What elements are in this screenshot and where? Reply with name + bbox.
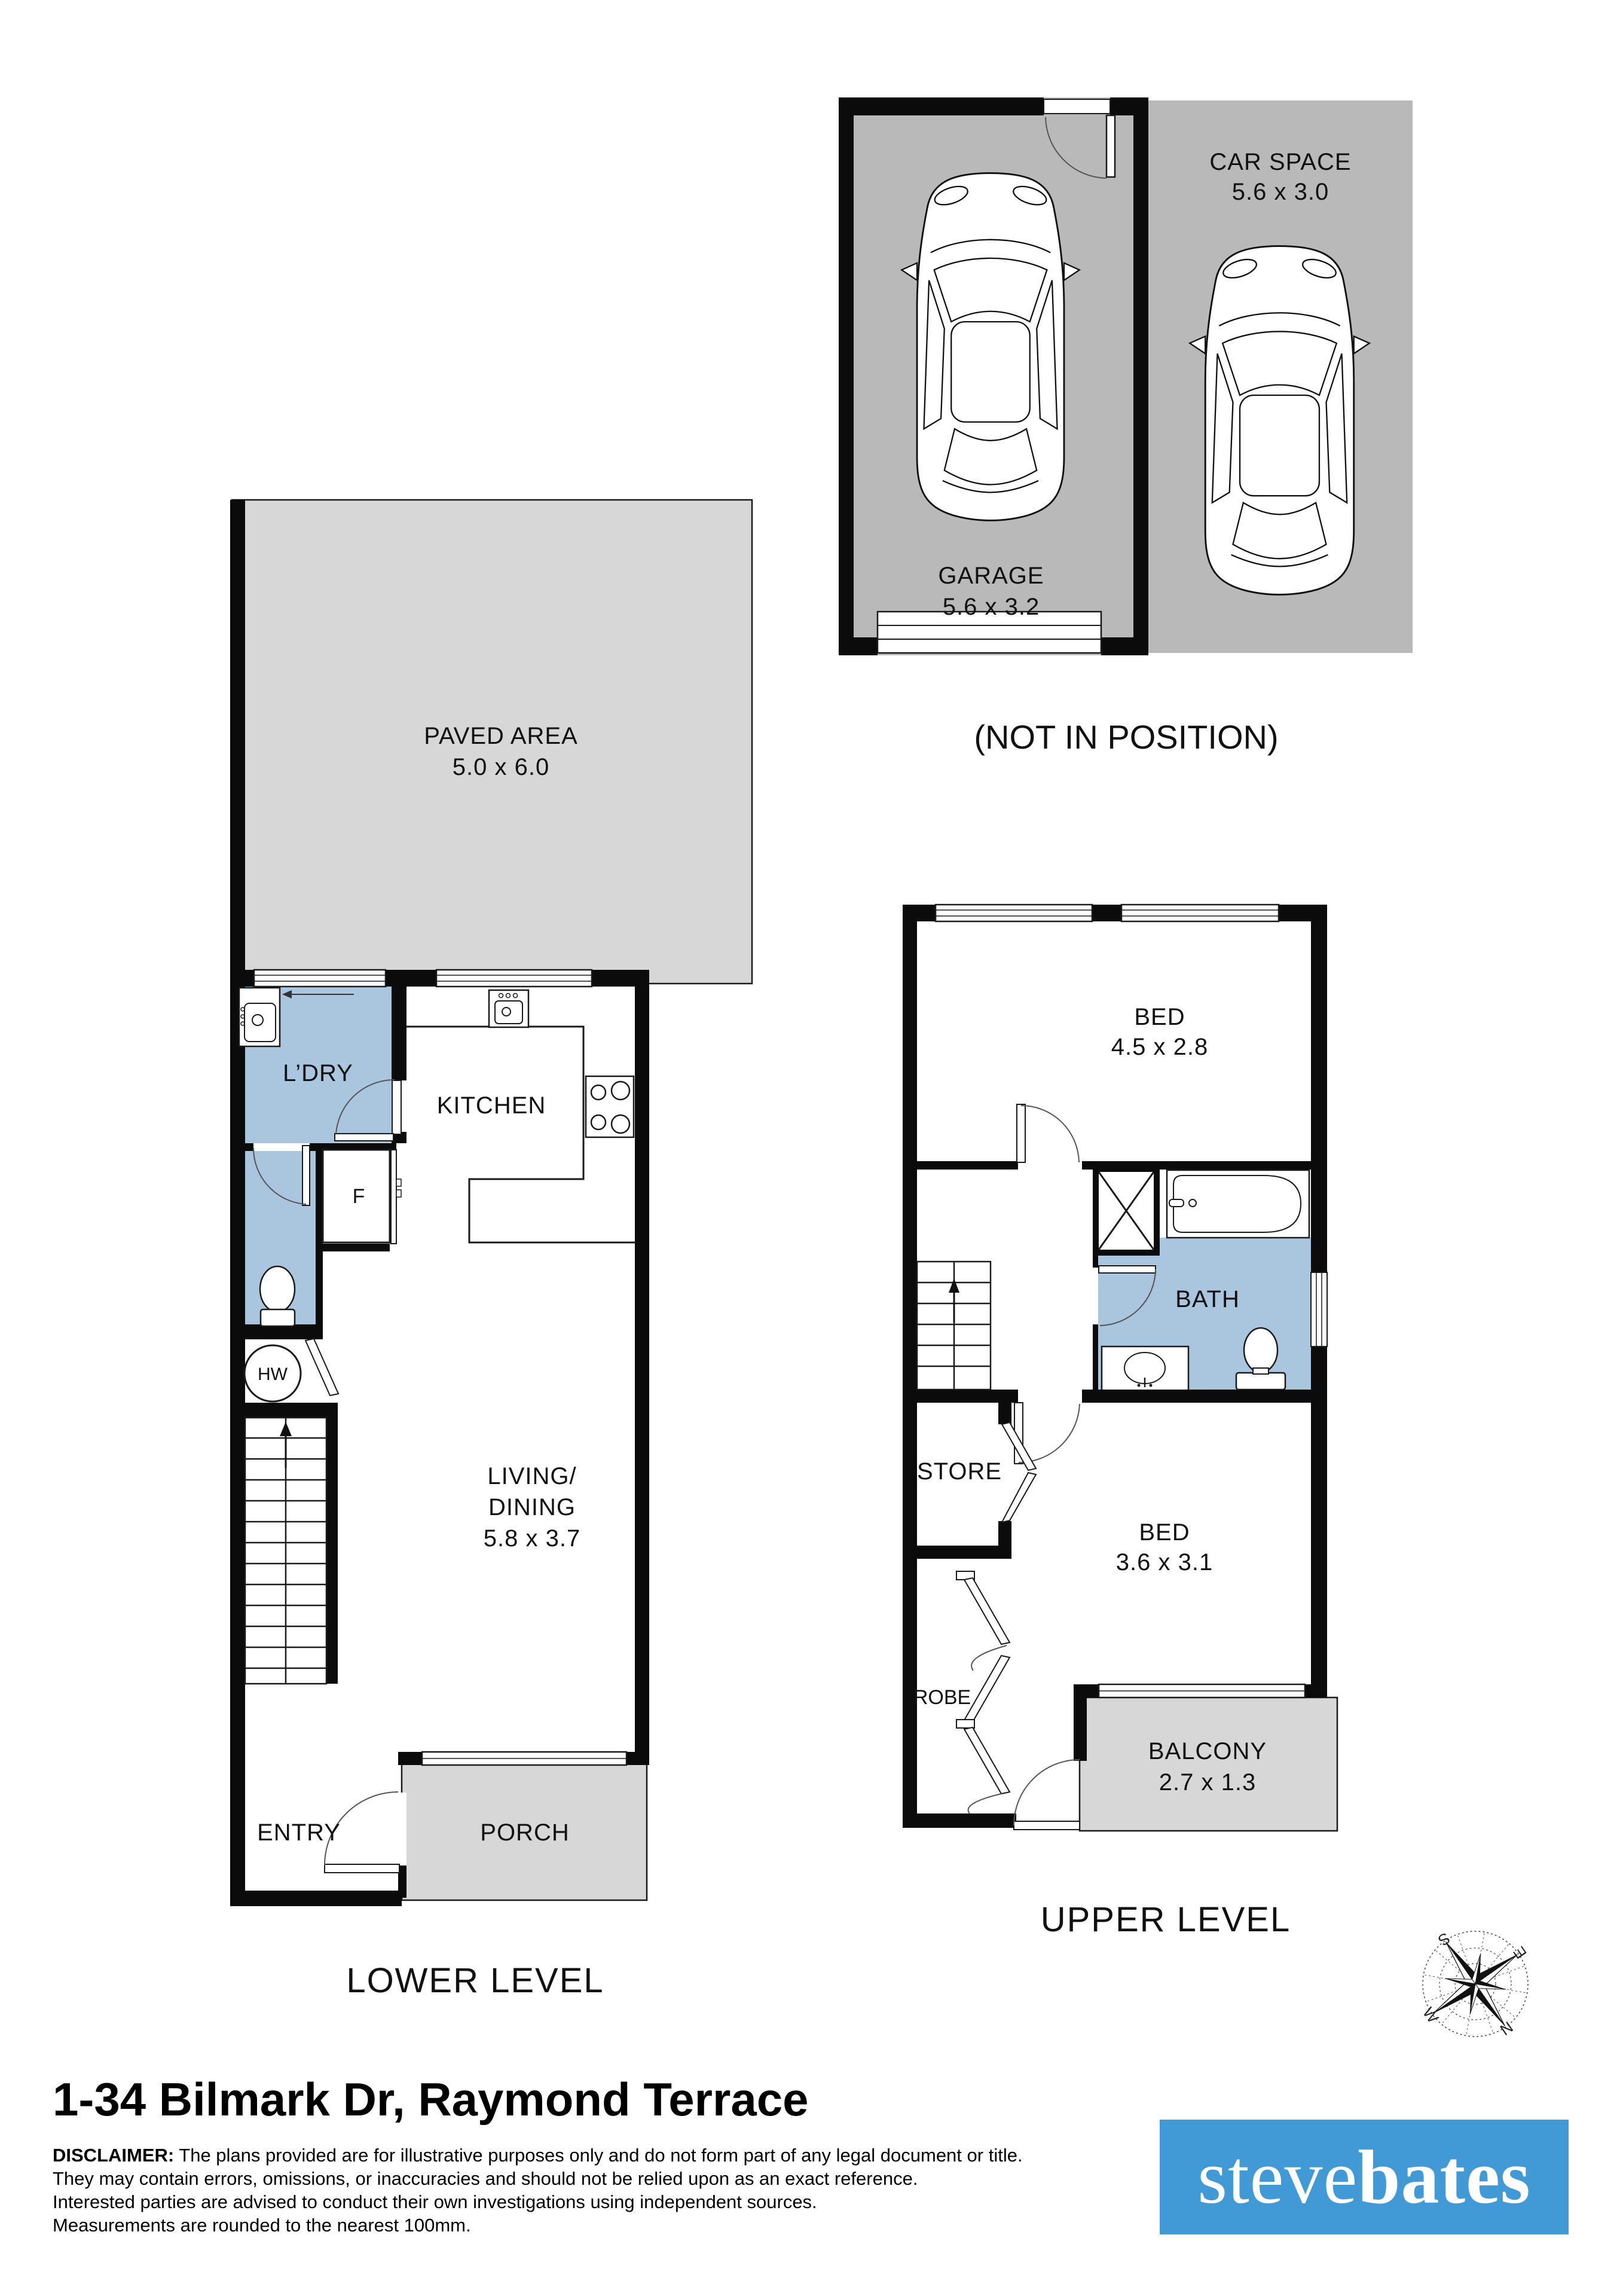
- shower-icon: [1093, 1166, 1160, 1256]
- living-dims: 5.8 x 3.7: [484, 1525, 580, 1552]
- hw-cupboard-door-icon: [305, 1339, 338, 1396]
- disclaimer-label: DISCLAIMER:: [53, 2145, 174, 2166]
- disclaimer-text: DISCLAIMER: The plans provided are for i…: [53, 2144, 1023, 2237]
- fridge-label: F: [353, 1185, 365, 1208]
- address-title: 1-34 Bilmark Dr, Raymond Terrace: [53, 2072, 808, 2127]
- living-label-line2: DINING: [488, 1494, 576, 1521]
- disclaimer-line-1: The plans provided are for illustrative …: [179, 2145, 1022, 2166]
- disclaimer-line: DISCLAIMER: The plans provided are for i…: [53, 2144, 1023, 2167]
- garage-dims: 5.6 x 3.2: [943, 594, 1040, 620]
- upper-level-plan: BED 4.5 x 2.8 BATH STORE BED 3.6 x 3.1 R…: [903, 905, 1337, 1939]
- garage-label: GARAGE: [938, 563, 1044, 589]
- balcony-label: BALCONY: [1148, 1738, 1267, 1764]
- agency-logo: stevebates: [1160, 2120, 1569, 2234]
- floorplan-canvas: GARAGE 5.6 x 3.2 CAR SPACE 5.6 x 3.0 (NO…: [0, 0, 1623, 2296]
- entry-label: ENTRY: [257, 1819, 341, 1846]
- bed-main-dims: 4.5 x 2.8: [1111, 1034, 1208, 1060]
- bed-main-label: BED: [1134, 1004, 1185, 1030]
- bed-second-label: BED: [1139, 1519, 1190, 1546]
- paved-area-label: PAVED AREA: [424, 723, 578, 749]
- living-label-line1: LIVING/: [487, 1463, 576, 1489]
- vanity-sink-icon: [1102, 1347, 1188, 1390]
- disclaimer-line-2: They may contain errors, omissions, or i…: [53, 2167, 1023, 2190]
- disclaimer-line-3: Interested parties are advised to conduc…: [53, 2190, 1023, 2213]
- bathtub-icon: [1167, 1170, 1309, 1238]
- bed-second-dims: 3.6 x 3.1: [1116, 1549, 1213, 1576]
- robe-label: ROBE: [913, 1686, 971, 1709]
- compass-north-label: N: [1497, 2018, 1517, 2039]
- balcony-dims: 2.7 x 1.3: [1159, 1769, 1256, 1796]
- laundry-label: L’DRY: [283, 1060, 353, 1086]
- toilet-icon: [260, 1266, 295, 1326]
- staircase-lower: [245, 1418, 326, 1684]
- car-icon: [901, 173, 1079, 521]
- garage-block: GARAGE 5.6 x 3.2 CAR SPACE 5.6 x 3.0 (NO…: [839, 97, 1413, 756]
- staircase-upper: [917, 1262, 991, 1390]
- not-in-position-note: (NOT IN POSITION): [974, 718, 1278, 756]
- compass-west-label: W: [1419, 2004, 1442, 2027]
- car-space-label: CAR SPACE: [1209, 149, 1351, 175]
- paved-area-dims: 5.0 x 6.0: [453, 754, 549, 780]
- disclaimer-line-4: Measurements are rounded to the nearest …: [53, 2213, 1023, 2237]
- kitchen-label: KITCHEN: [437, 1092, 546, 1119]
- logo-part2: bates: [1358, 2133, 1530, 2221]
- store-label: STORE: [917, 1458, 1002, 1485]
- bath-label: BATH: [1175, 1286, 1240, 1312]
- floorplan-page: GARAGE 5.6 x 3.2 CAR SPACE 5.6 x 3.0 (NO…: [0, 0, 1623, 2296]
- compass-icon: N S W E: [1404, 1912, 1547, 2056]
- lower-level-plan: PAVED AREA 5.0 x 6.0 L’DRY KITCHEN F HW …: [230, 500, 752, 2000]
- hot-water-label: HW: [258, 1364, 288, 1384]
- porch-label: PORCH: [480, 1819, 569, 1846]
- laundry-trough-icon: [239, 988, 280, 1046]
- logo-part1: steve: [1197, 2133, 1358, 2221]
- compass-south-label: S: [1435, 1929, 1453, 1950]
- lower-level-title: LOWER LEVEL: [346, 1961, 604, 2000]
- kitchen-sink-icon: [489, 990, 528, 1027]
- car-space-dims: 5.6 x 3.0: [1232, 179, 1329, 205]
- upper-level-title: UPPER LEVEL: [1041, 1900, 1291, 1939]
- car-icon: [1190, 246, 1370, 595]
- stove-icon: [586, 1076, 634, 1137]
- balcony-door-icon: [1014, 1760, 1080, 1830]
- bed1-door-icon: [1017, 1104, 1082, 1170]
